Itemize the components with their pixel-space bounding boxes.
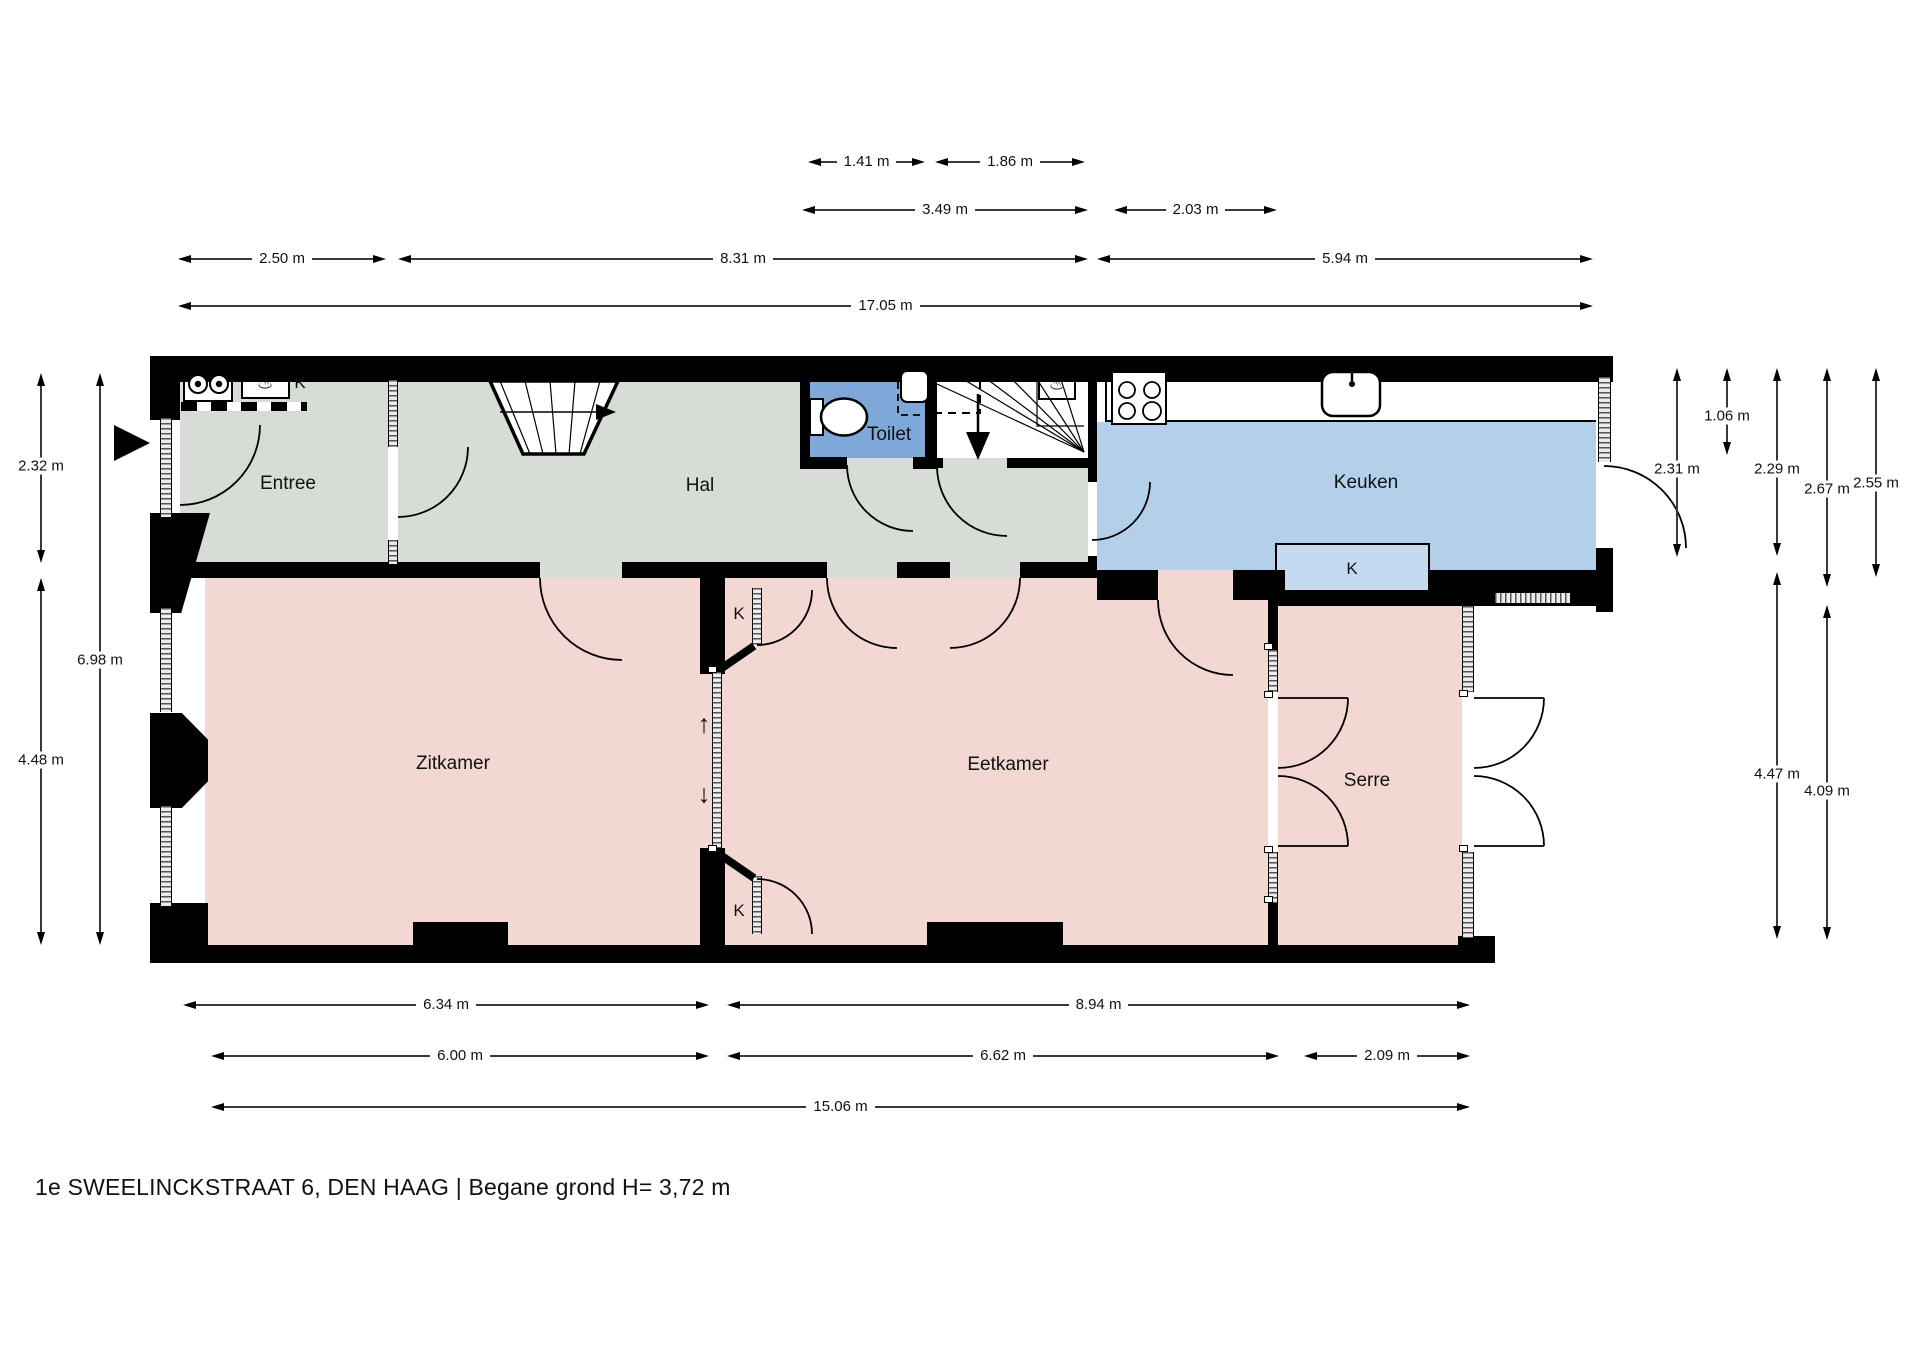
page-title: 1e SWEELINCKSTRAAT 6, DEN HAAG | Begane … <box>35 1174 731 1201</box>
hal-eetkamer-door2-arc <box>950 578 1020 648</box>
dim-top-1-86: 1.86 m <box>935 155 1085 169</box>
stair-hall-door-arc <box>937 466 1007 536</box>
room-label-entree: Entree <box>260 473 316 495</box>
dim-label-4-48: 4.48 m <box>14 752 68 769</box>
room-label-hal: Hal <box>686 475 715 497</box>
closet-label-keuken-kast: K <box>1346 559 1357 579</box>
dim-label-2-29: 2.29 m <box>1750 461 1804 478</box>
closet-label-kast-onder: K <box>733 901 744 921</box>
closet-label-kast-boven: K <box>733 604 744 624</box>
geyser-icon-entree: ♨ <box>256 372 273 395</box>
fontein-basin-icon <box>901 371 928 402</box>
door-arcs <box>180 425 1686 934</box>
serre-french-door-right-lower <box>1474 776 1544 846</box>
dim-right-4-09 <box>1820 605 1834 940</box>
dim-label-4-47: 4.47 m <box>1750 766 1804 783</box>
room-label-keuken: Keuken <box>1334 472 1398 494</box>
hinge-square <box>1264 643 1273 650</box>
room-label-toilet: Toilet <box>867 424 911 446</box>
meter-dials <box>189 375 228 393</box>
hinge-square <box>708 845 717 852</box>
toilet-door-arc <box>847 465 913 531</box>
hinge-square <box>1459 845 1468 852</box>
dim-label-2-32: 2.32 m <box>14 458 68 475</box>
dim-top-1-41: 1.41 m <box>808 155 925 169</box>
room-label-eetkamer: Eetkamer <box>967 754 1048 776</box>
dim-label-2-31: 2.31 m <box>1650 461 1704 478</box>
ensuite-down-arrow-icon: ↓ <box>698 779 711 810</box>
room-label-zitkamer: Zitkamer <box>416 753 490 775</box>
dim-top-2-03: 2.03 m <box>1114 203 1277 217</box>
dim-top-3-49: 3.49 m <box>802 203 1088 217</box>
dim-bottom-6-62: 6.62 m <box>727 1049 1279 1063</box>
dim-right-4-47 <box>1770 572 1784 939</box>
closet-diagonal-walls <box>722 646 754 878</box>
hinge-square <box>1459 690 1468 697</box>
closet-label-meterkast: K <box>294 373 305 393</box>
dim-top-2-50: 2.50 m <box>178 252 386 266</box>
hal-keuken-door-arc <box>1092 482 1150 540</box>
kast-onder-diagonal <box>722 856 754 878</box>
hal-zitkamer-door-arc <box>540 578 622 660</box>
staircase-up <box>490 381 618 454</box>
dim-right-2-67 <box>1820 368 1834 587</box>
dim-top-17-05: 17.05 m <box>178 299 1593 313</box>
entrance-arrow-icon <box>114 425 150 461</box>
sink-tap-spout <box>1349 381 1355 387</box>
kast-onder-door-arc <box>757 879 812 934</box>
hinge-square <box>1264 896 1273 903</box>
dim-label-1-06: 1.06 m <box>1700 408 1754 425</box>
serre-french-door-left-lower <box>1278 776 1348 846</box>
hinge-square <box>1264 846 1273 853</box>
serre-french-door-left-upper <box>1278 698 1348 768</box>
floorplan-page: Entree Hal Toilet Keuken Zitkamer Eetkam… <box>0 0 1920 1358</box>
dim-bottom-8-94: 8.94 m <box>727 998 1470 1012</box>
hinge-square <box>708 666 717 673</box>
ensuite-up-arrow-icon: ↑ <box>698 709 711 740</box>
dim-label-2-67: 2.67 m <box>1800 481 1854 498</box>
dim-bottom-15-06: 15.06 m <box>211 1100 1470 1114</box>
dim-bottom-2-09: 2.09 m <box>1304 1049 1470 1063</box>
dim-label-6-98: 6.98 m <box>73 652 127 669</box>
kitchen-fixtures <box>1112 357 1380 424</box>
geyser-icon-stair: ♨ <box>1048 373 1065 396</box>
dim-label-4-09: 4.09 m <box>1800 783 1854 800</box>
dim-right-2-55 <box>1869 368 1883 577</box>
dim-bottom-6-34: 6.34 m <box>183 998 709 1012</box>
dim-label-2-55: 2.55 m <box>1849 475 1903 492</box>
dim-bottom-6-00: 6.00 m <box>211 1049 709 1063</box>
room-label-serre: Serre <box>1344 770 1390 792</box>
dim-top-5-94: 5.94 m <box>1097 252 1593 266</box>
keuken-eetkamer-door-arc <box>1158 600 1233 675</box>
kast-boven-diagonal <box>722 646 754 668</box>
entree-hal-door-arc <box>398 447 468 517</box>
kast-boven-door-arc <box>757 590 812 645</box>
serre-french-door-right-upper <box>1474 698 1544 768</box>
hinge-square <box>1264 691 1273 698</box>
dim-top-8-31: 8.31 m <box>398 252 1088 266</box>
front-door-arc <box>180 425 260 505</box>
toilet-bowl-icon <box>821 399 867 436</box>
stair-down-arrowhead-icon <box>966 432 990 460</box>
hal-eetkamer-door1-arc <box>827 578 897 648</box>
